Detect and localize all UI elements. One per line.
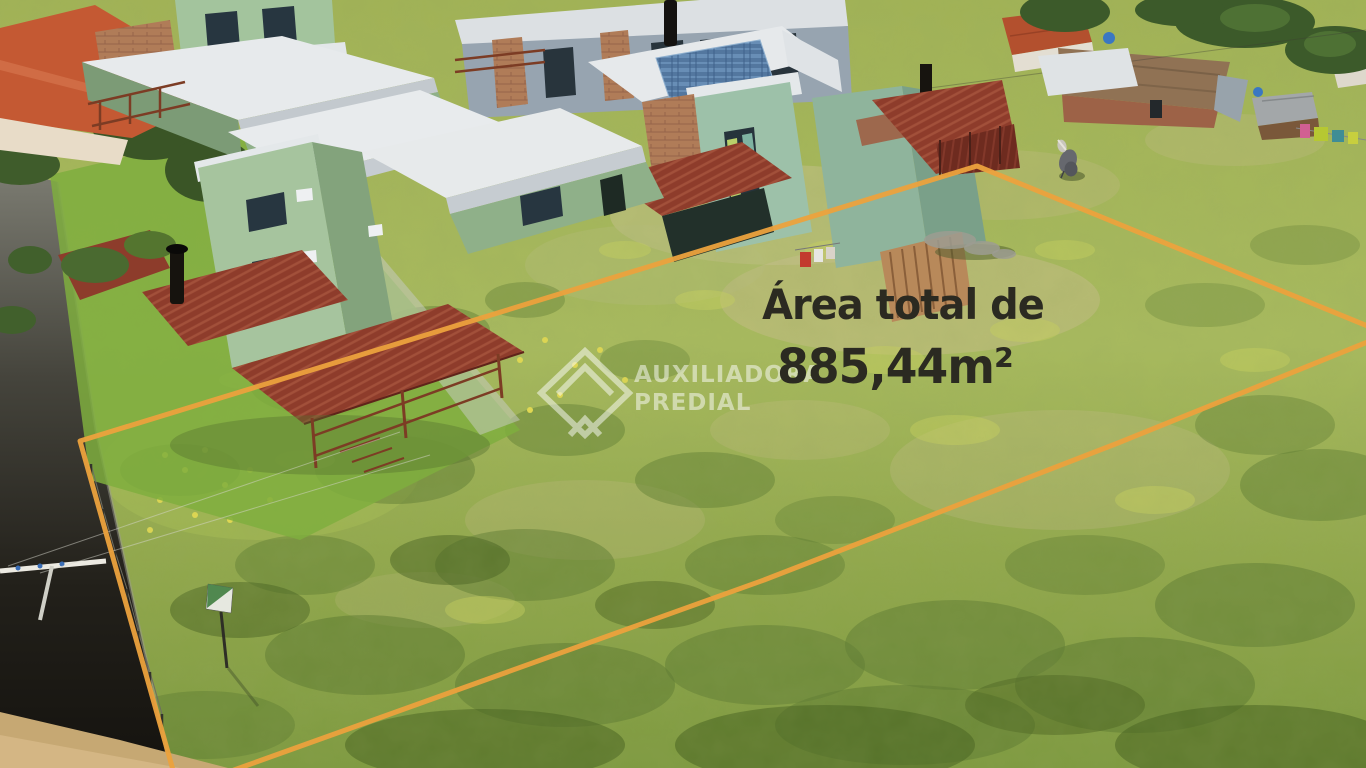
- window: [543, 47, 576, 98]
- watermark-line2: PREDIAL: [634, 390, 751, 416]
- laundry: [826, 247, 835, 259]
- chimney: [664, 0, 677, 46]
- area-total-value: 885,44m²: [777, 339, 1013, 395]
- laundry: [800, 252, 811, 267]
- water-tank: [1103, 32, 1115, 44]
- area-total-label: Área total de: [762, 280, 1044, 329]
- doorway: [600, 174, 626, 216]
- ac-unit: [296, 188, 313, 202]
- laundry: [814, 249, 823, 262]
- ac-unit: [368, 224, 383, 237]
- chimney: [170, 250, 184, 304]
- water-tank: [1253, 87, 1263, 97]
- photo-scene: AUXILIADORA PREDIAL: [0, 0, 1366, 768]
- aerial-photo-stage: AUXILIADORA PREDIAL Área total de 885,44…: [0, 0, 1366, 768]
